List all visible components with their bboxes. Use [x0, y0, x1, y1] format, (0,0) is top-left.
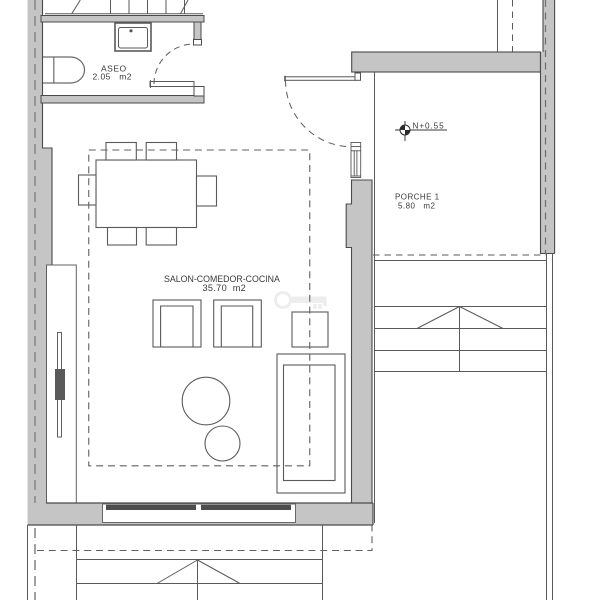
svg-text:N+0.55: N+0.55	[413, 122, 445, 131]
svg-text:2.05 m2: 2.05 m2	[93, 72, 133, 82]
svg-text:35.70 m2: 35.70 m2	[203, 283, 247, 293]
svg-text:PORCHE 1: PORCHE 1	[395, 193, 440, 202]
svg-text:5.80 m2: 5.80 m2	[398, 202, 436, 211]
